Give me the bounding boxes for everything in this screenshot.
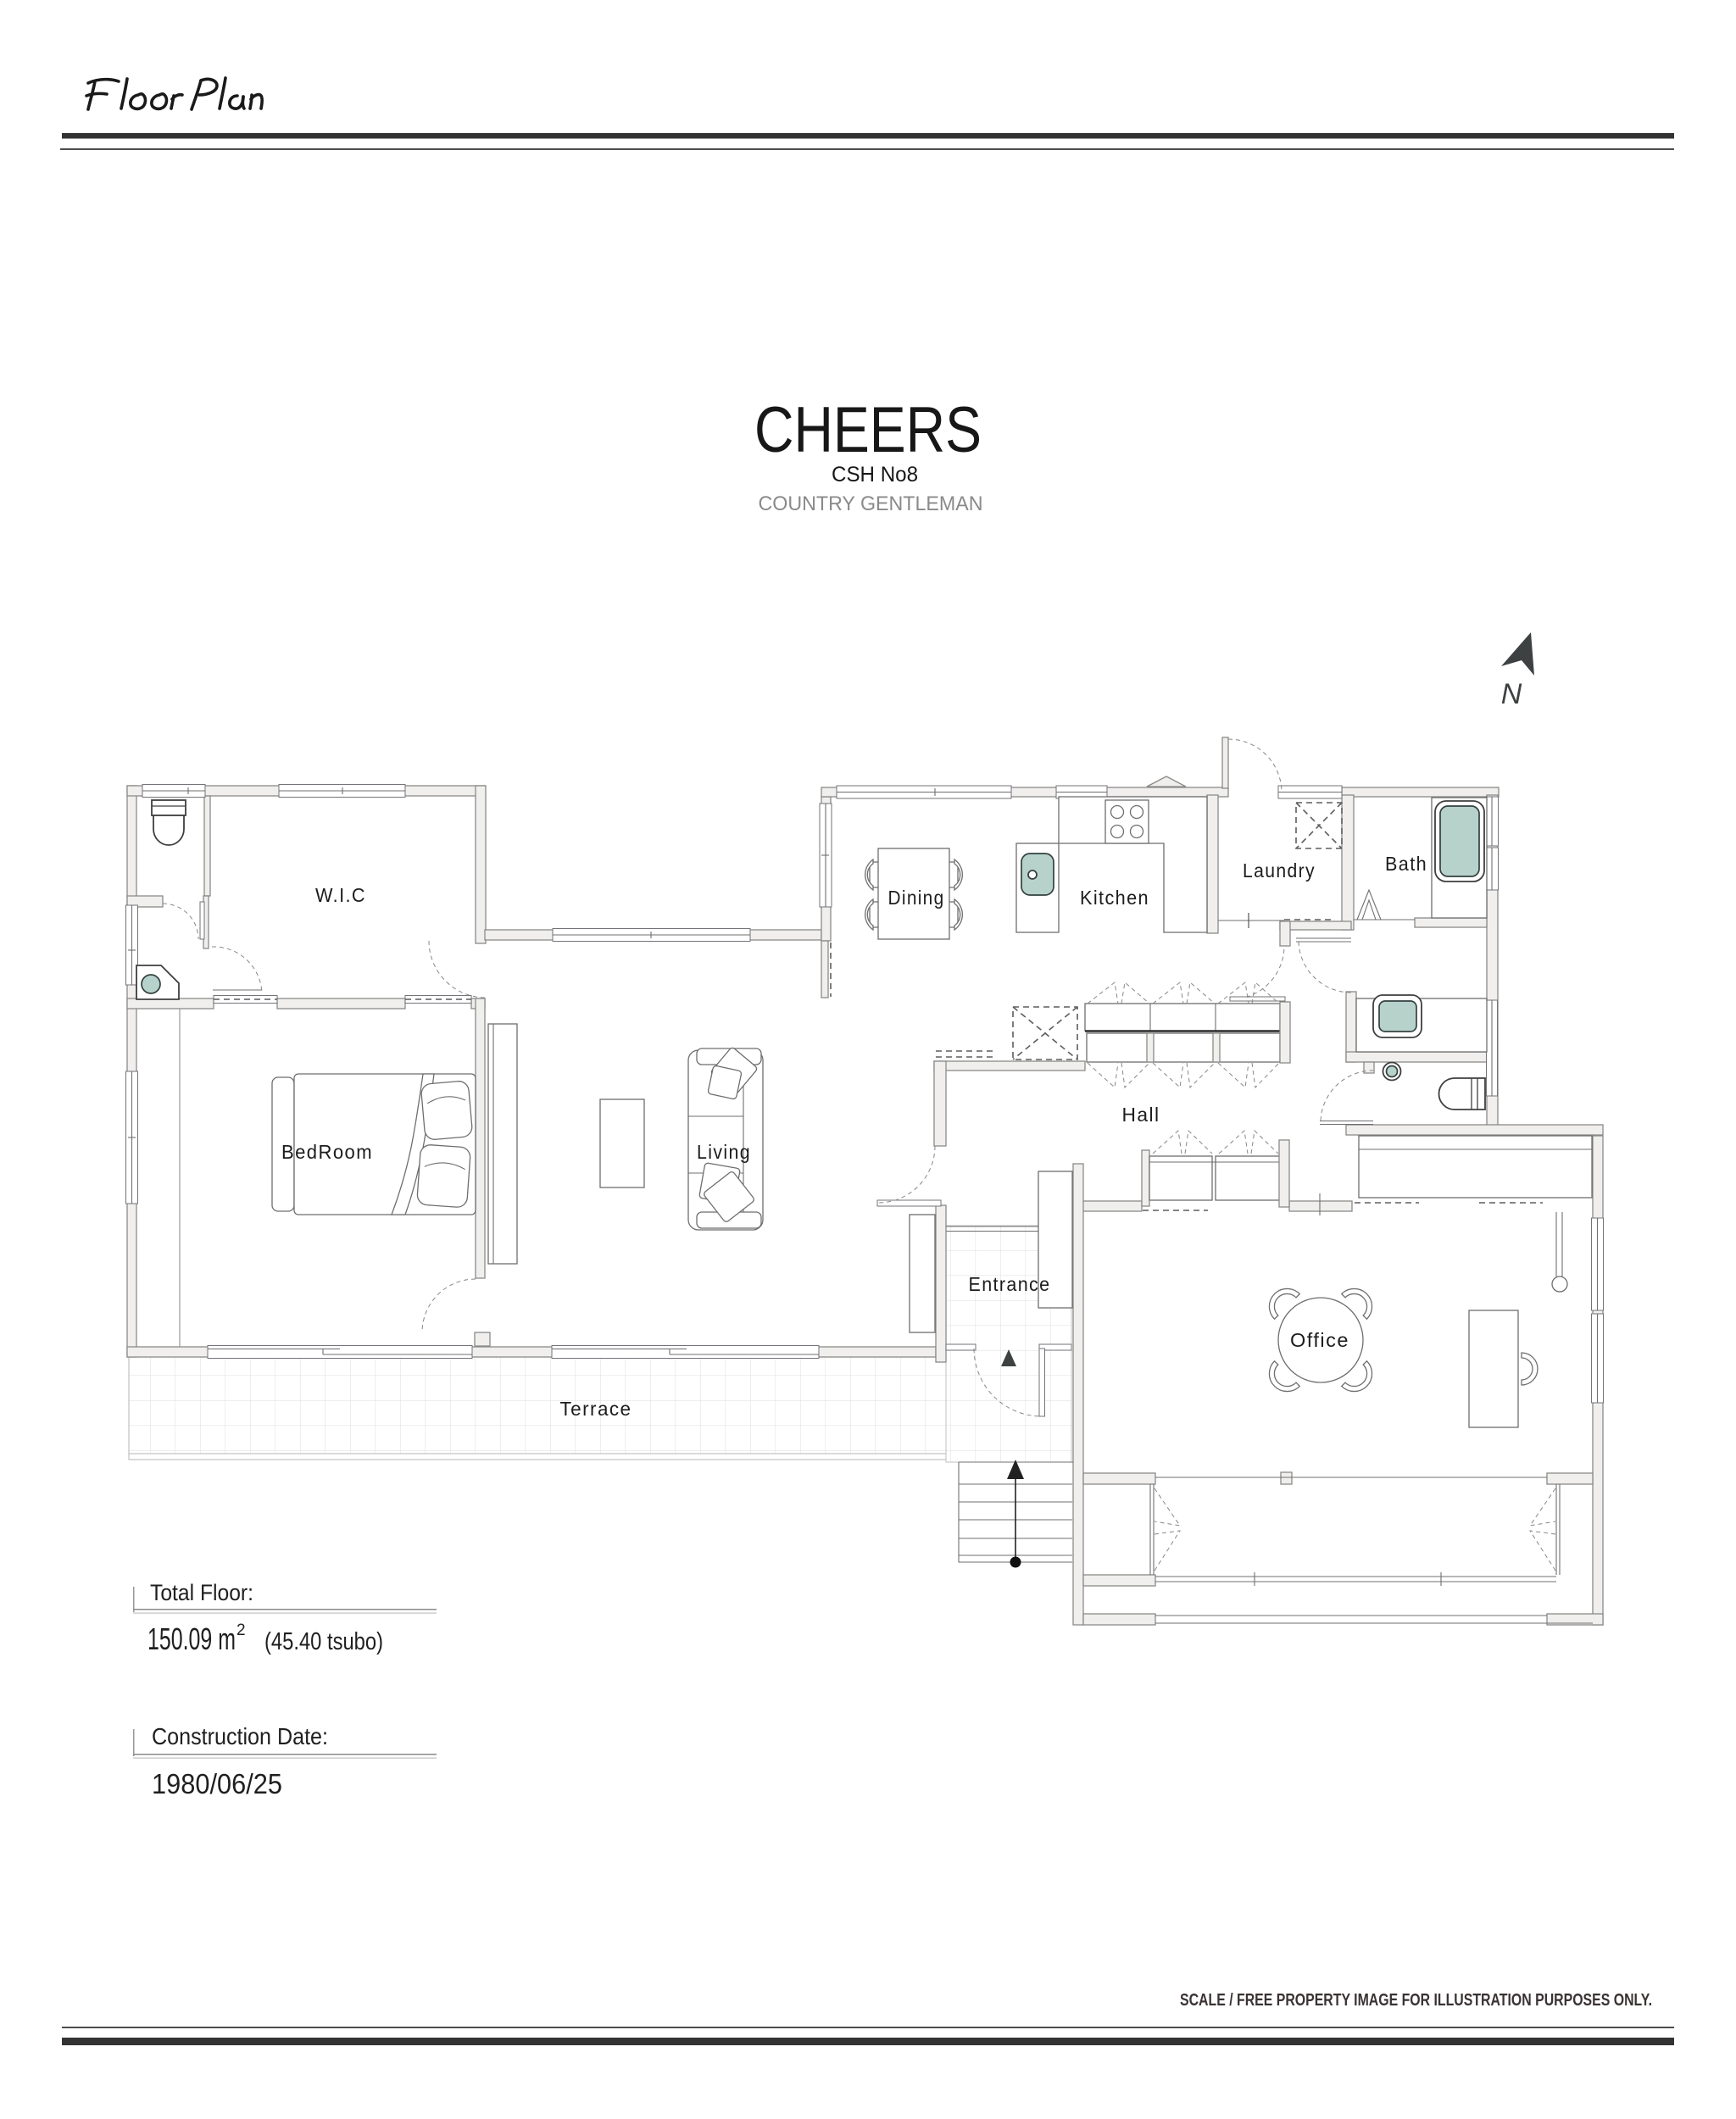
svg-text:COUNTRY GENTLEMAN: COUNTRY GENTLEMAN xyxy=(759,492,983,515)
svg-text:Living: Living xyxy=(697,1141,751,1163)
svg-text:Laundry: Laundry xyxy=(1243,859,1316,882)
svg-text:CSH No8: CSH No8 xyxy=(832,463,918,487)
svg-text:Office: Office xyxy=(1290,1329,1349,1351)
svg-text:Bath: Bath xyxy=(1385,853,1427,875)
svg-text:2: 2 xyxy=(236,1621,246,1639)
svg-text:Kitchen: Kitchen xyxy=(1080,887,1149,909)
svg-text:N: N xyxy=(1501,678,1522,710)
svg-text:BedRoom: BedRoom xyxy=(281,1141,373,1163)
svg-text:Construction Date:: Construction Date: xyxy=(152,1723,328,1749)
svg-text:Entrance: Entrance xyxy=(969,1273,1051,1295)
svg-text:SCALE / FREE PROPERTY IMAGE FO: SCALE / FREE PROPERTY IMAGE FOR ILLUSTRA… xyxy=(1180,1991,1652,2010)
svg-text:Terrace: Terrace xyxy=(560,1398,632,1420)
svg-text:1980/06/25: 1980/06/25 xyxy=(152,1768,282,1799)
svg-text:Total Floor:: Total Floor: xyxy=(150,1580,253,1605)
svg-text:(45.40 tsubo): (45.40 tsubo) xyxy=(264,1628,383,1655)
svg-text:Dining: Dining xyxy=(888,887,945,909)
svg-text:CHEERS: CHEERS xyxy=(754,394,982,466)
svg-text:Hall: Hall xyxy=(1122,1104,1160,1126)
svg-text:150.09 m: 150.09 m xyxy=(147,1621,236,1656)
svg-text:W.I.C: W.I.C xyxy=(315,884,366,906)
